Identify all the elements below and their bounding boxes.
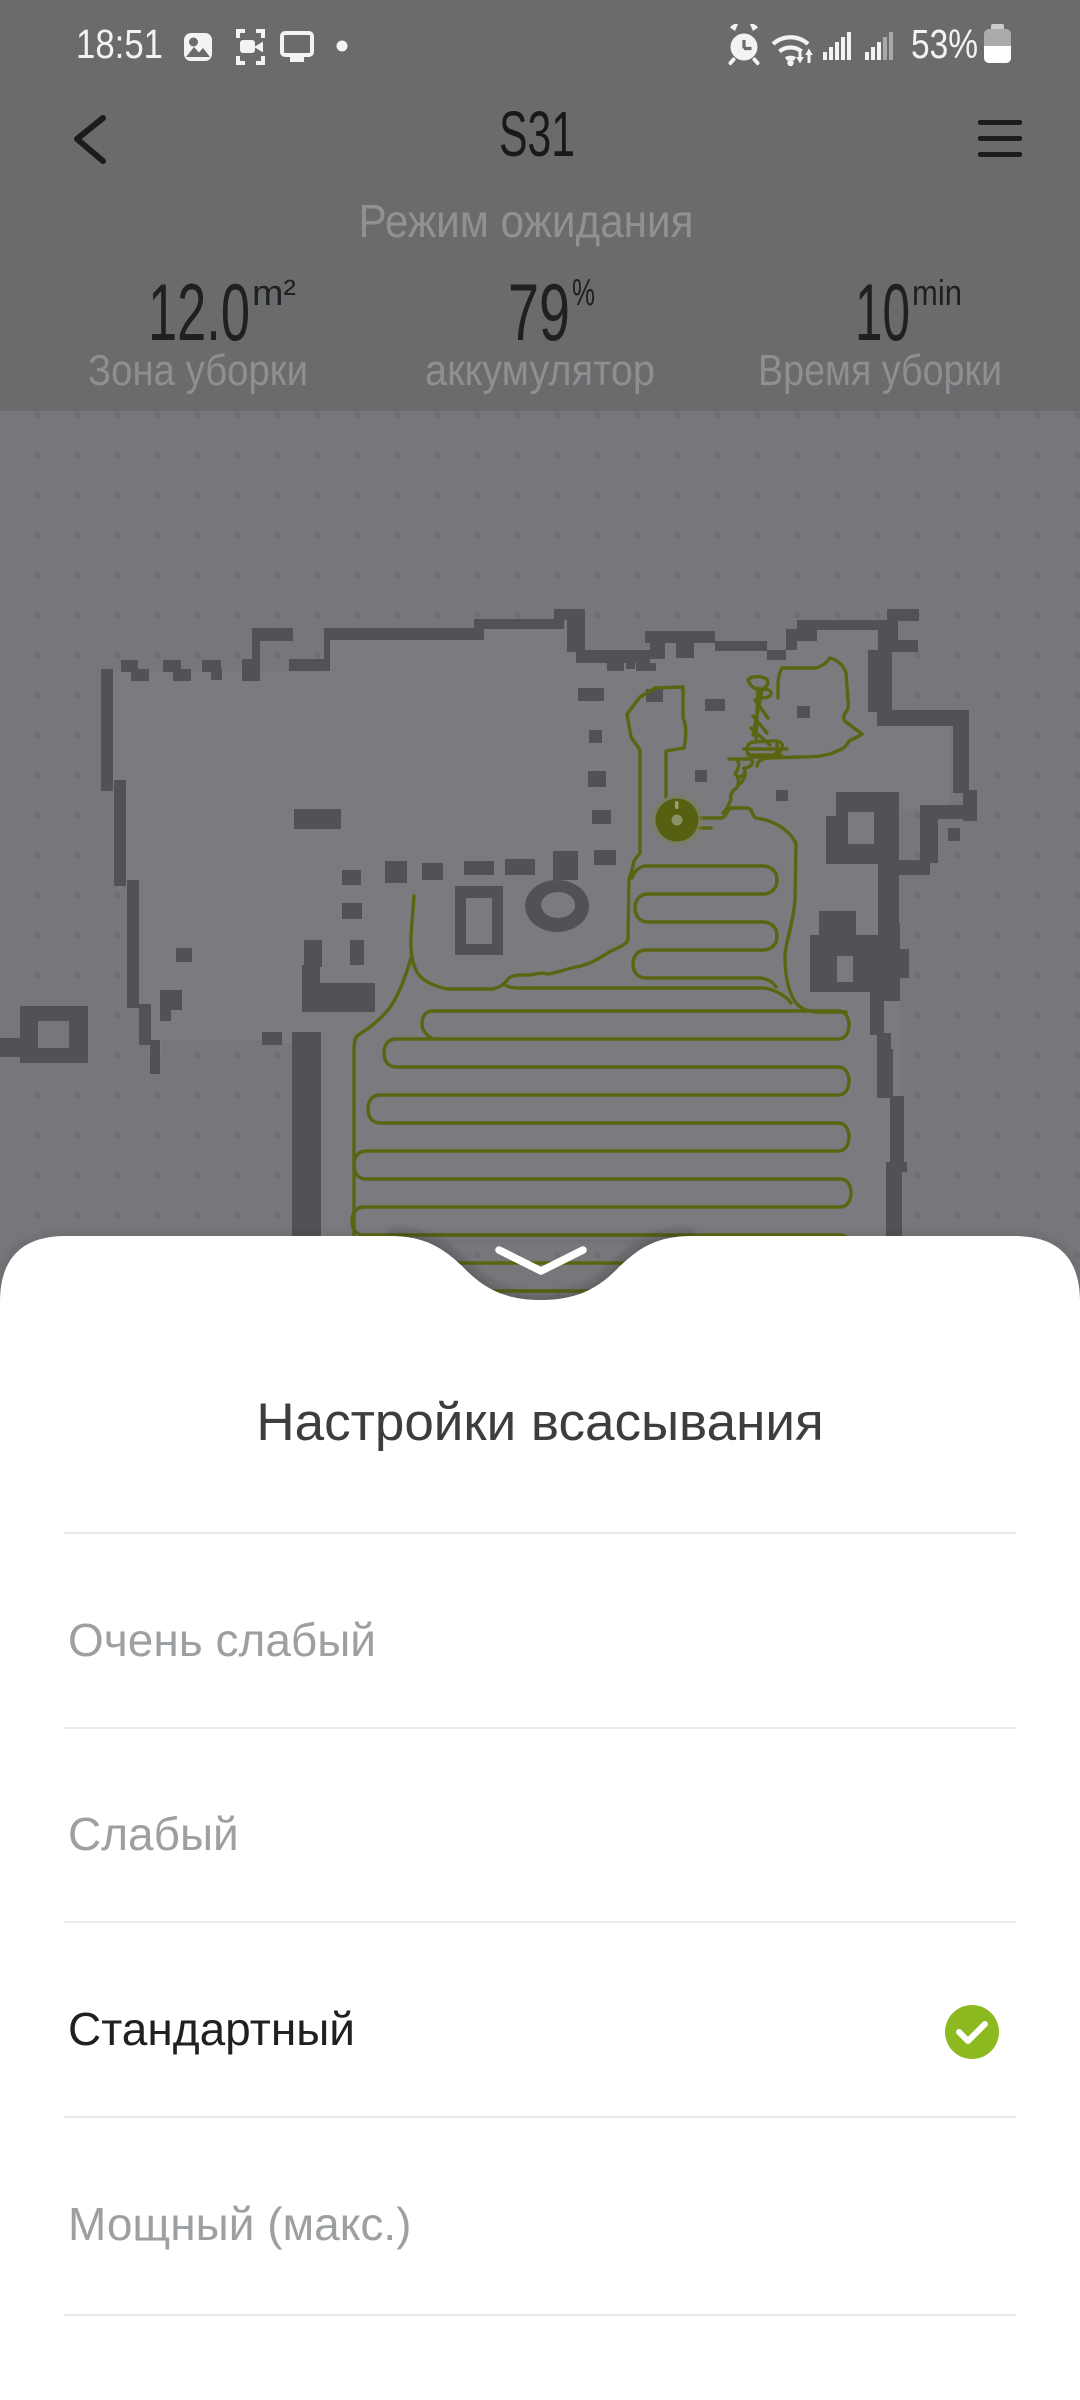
svg-text:m²: m² [252,272,296,313]
svg-text:10: 10 [855,268,910,358]
svg-text:Зона уборки: Зона уборки [88,346,308,395]
svg-text:79: 79 [508,268,570,358]
svg-text:12.0: 12.0 [148,268,250,358]
svg-text:аккумулятор: аккумулятор [425,346,655,395]
svg-text:Время уборки: Время уборки [758,346,1002,395]
svg-text:%: % [572,272,595,314]
svg-text:min: min [912,272,962,313]
svg-text:S31: S31 [499,98,575,170]
svg-text:Режим ожидания: Режим ожидания [359,195,694,247]
